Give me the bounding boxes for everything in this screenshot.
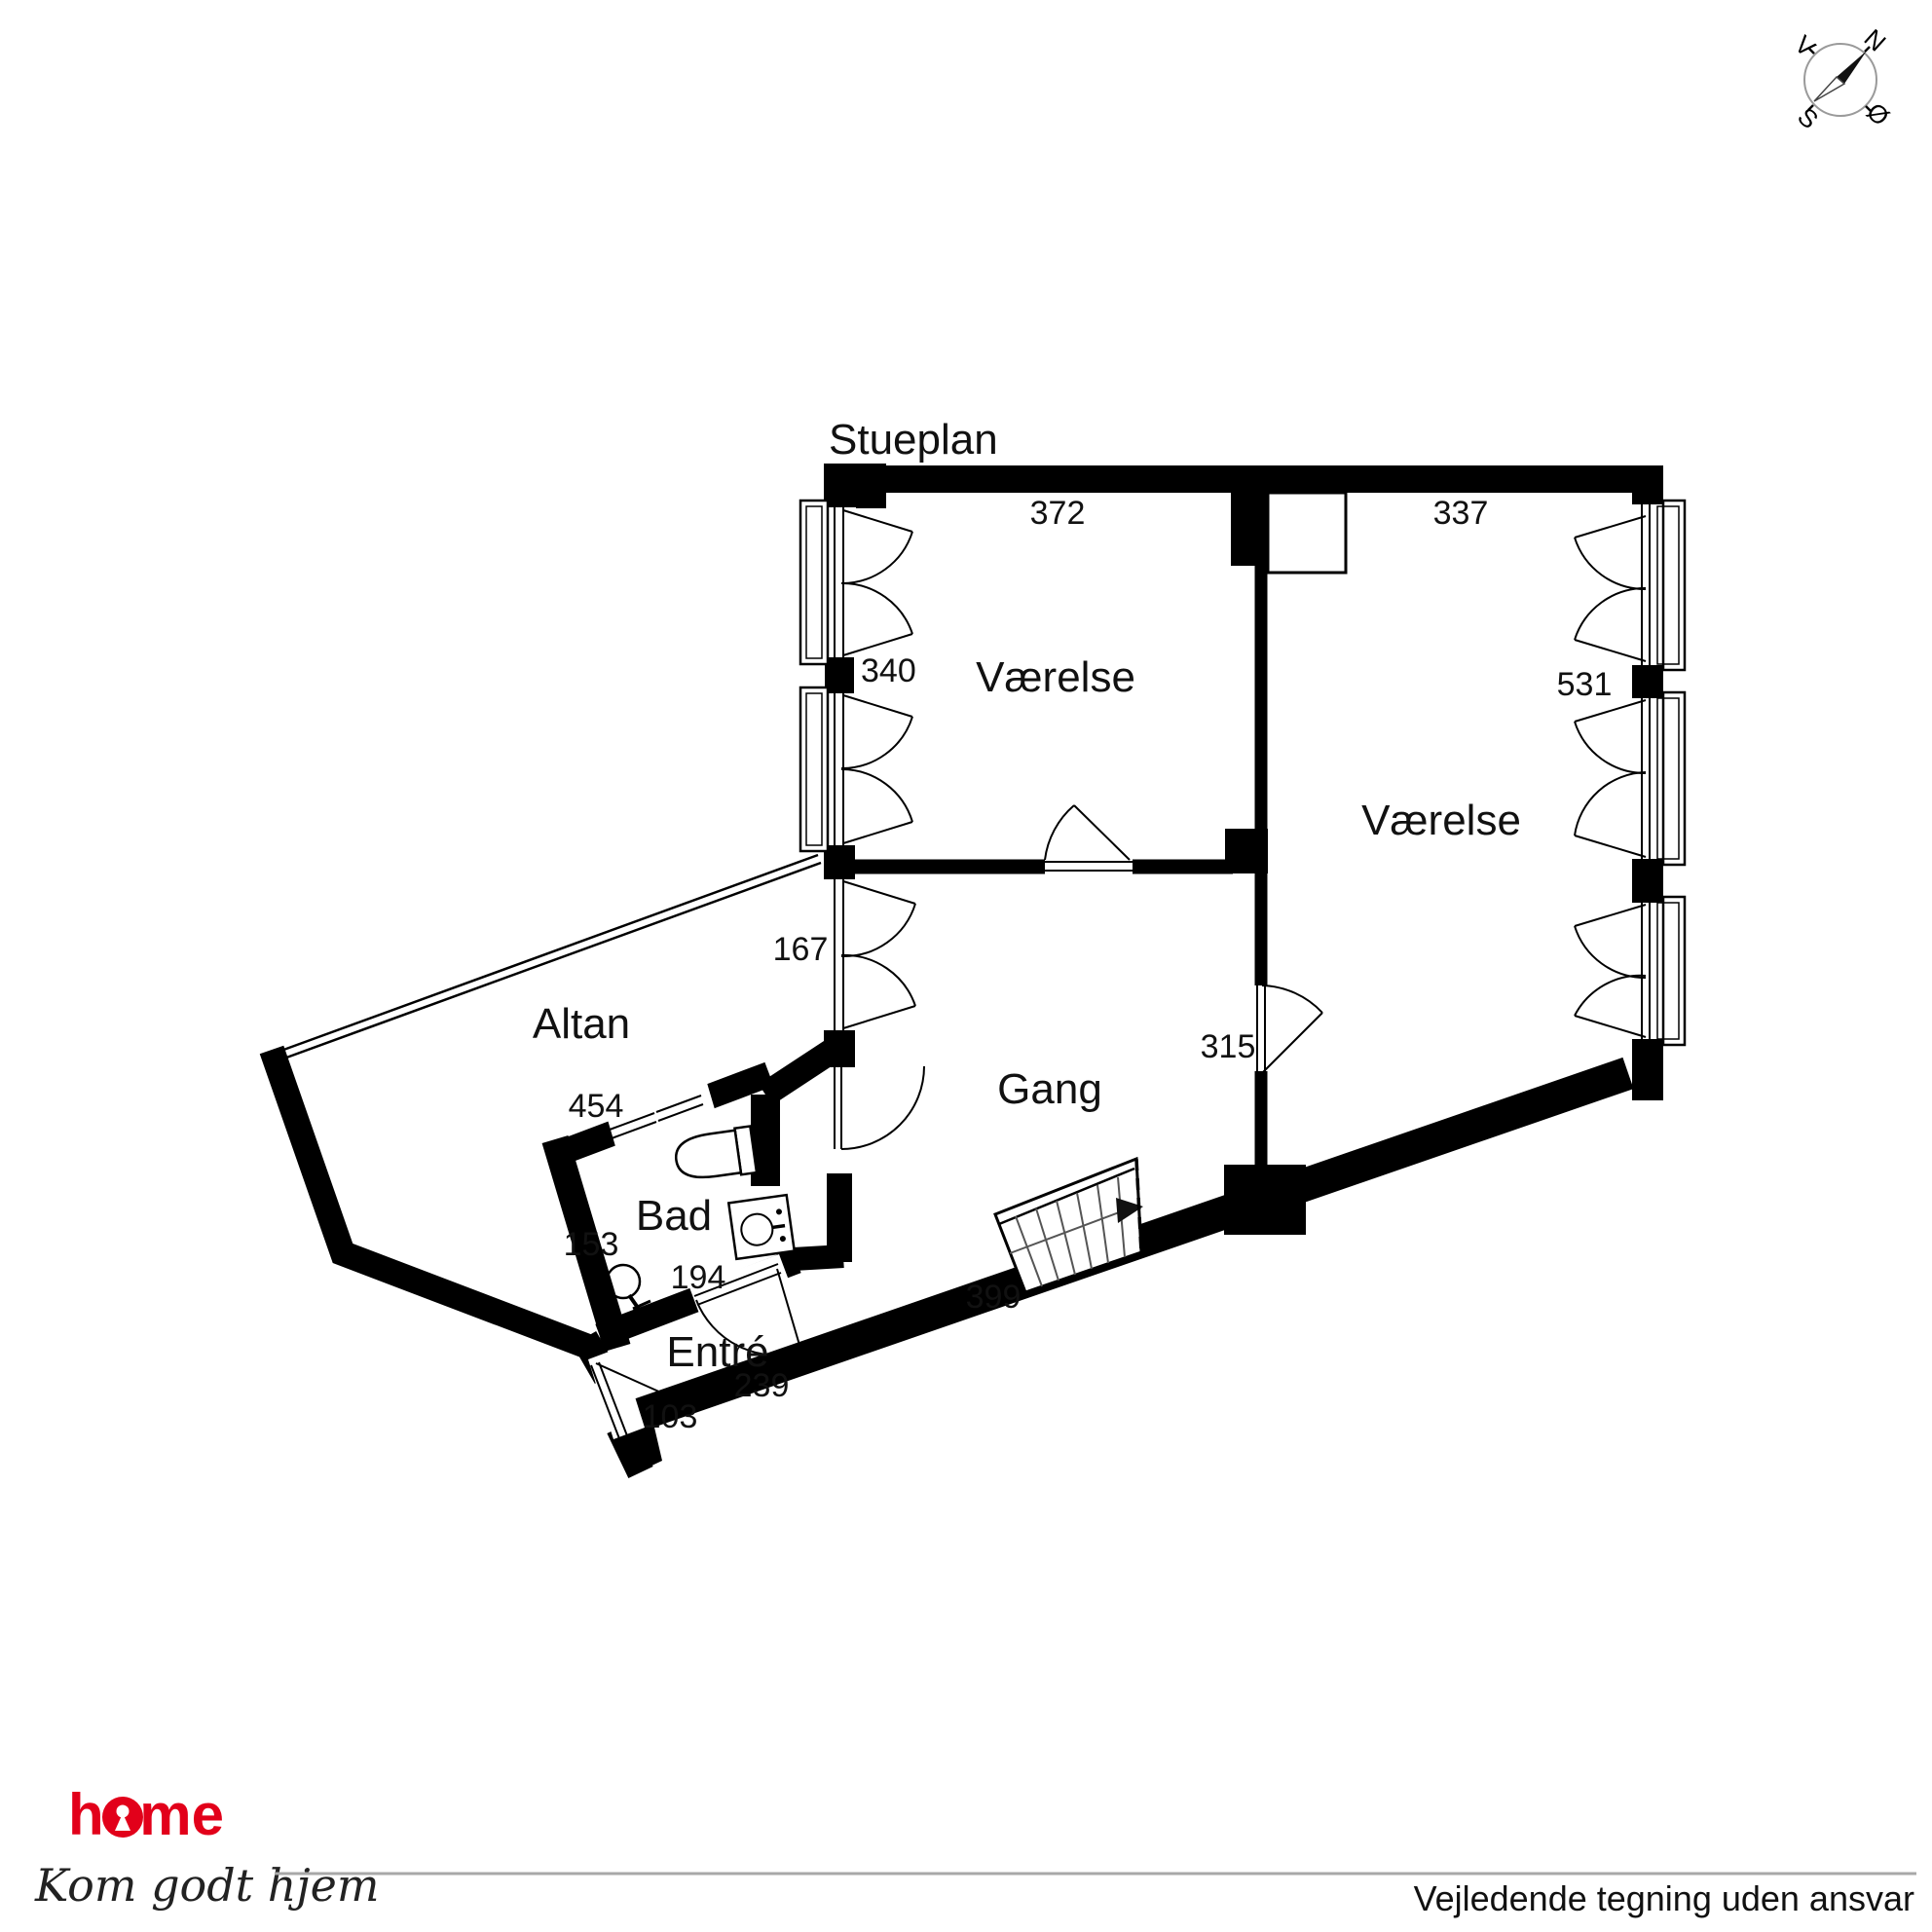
compass-label-s: S: [1792, 101, 1824, 134]
toilet-icon: [673, 1127, 757, 1184]
brand-logo: home Kom godt hjem: [34, 1782, 380, 1912]
compass-label-v: V: [1789, 29, 1821, 62]
room-label-bad: Bad: [636, 1192, 712, 1240]
dim-337: 337: [1433, 495, 1489, 532]
staircase: [995, 1159, 1143, 1292]
compass-label-o: Ø: [1861, 96, 1895, 131]
dim-340: 340: [861, 652, 916, 689]
room-label-altan: Altan: [533, 1000, 630, 1048]
door-entre-gang: [835, 1066, 924, 1149]
compass-needle-north: [1837, 51, 1867, 84]
window-frame-right-2: [1663, 692, 1685, 865]
dim-315: 315: [1201, 1028, 1256, 1065]
window-frame-right-3: [1663, 897, 1685, 1045]
window-frames: [800, 501, 1685, 1045]
room-label-vaerelse-left: Værelse: [976, 653, 1135, 701]
dim-531: 531: [1557, 666, 1613, 703]
dim-454: 454: [569, 1088, 624, 1125]
wall-openings: [588, 504, 1665, 1439]
brand-tagline: Kom godt hjem: [34, 1859, 380, 1912]
footer-disclaimer: Vejledende tegning uden ansvar: [1414, 1878, 1914, 1918]
dim-167: 167: [773, 931, 829, 968]
dim-399: 399: [966, 1279, 1022, 1316]
floorplan-page: N V S Ø Stueplan: [0, 0, 1932, 1932]
dim-239: 239: [734, 1367, 790, 1404]
plan-title: Stueplan: [829, 416, 998, 464]
window-frame-right-1: [1663, 501, 1685, 670]
dim-103: 103: [643, 1398, 698, 1435]
dim-153: 153: [564, 1226, 619, 1263]
sink-icon: [728, 1195, 794, 1259]
floorplan-drawing: N V S Ø Stueplan: [0, 0, 1932, 1932]
dim-194: 194: [671, 1259, 726, 1296]
chimney-shaft: [1268, 493, 1346, 573]
brand-logo-word: home: [68, 1782, 224, 1847]
walls: [272, 464, 1663, 1476]
window-frame-left-2: [800, 687, 828, 851]
compass-needle-south: [1814, 77, 1844, 101]
dim-372: 372: [1030, 495, 1086, 532]
window-frame-left-1: [800, 501, 828, 664]
room-label-vaerelse-right: Værelse: [1361, 797, 1521, 844]
room-label-gang: Gang: [997, 1065, 1102, 1113]
windows: [835, 504, 1650, 1039]
compass-rose: N V S Ø: [1789, 23, 1895, 134]
